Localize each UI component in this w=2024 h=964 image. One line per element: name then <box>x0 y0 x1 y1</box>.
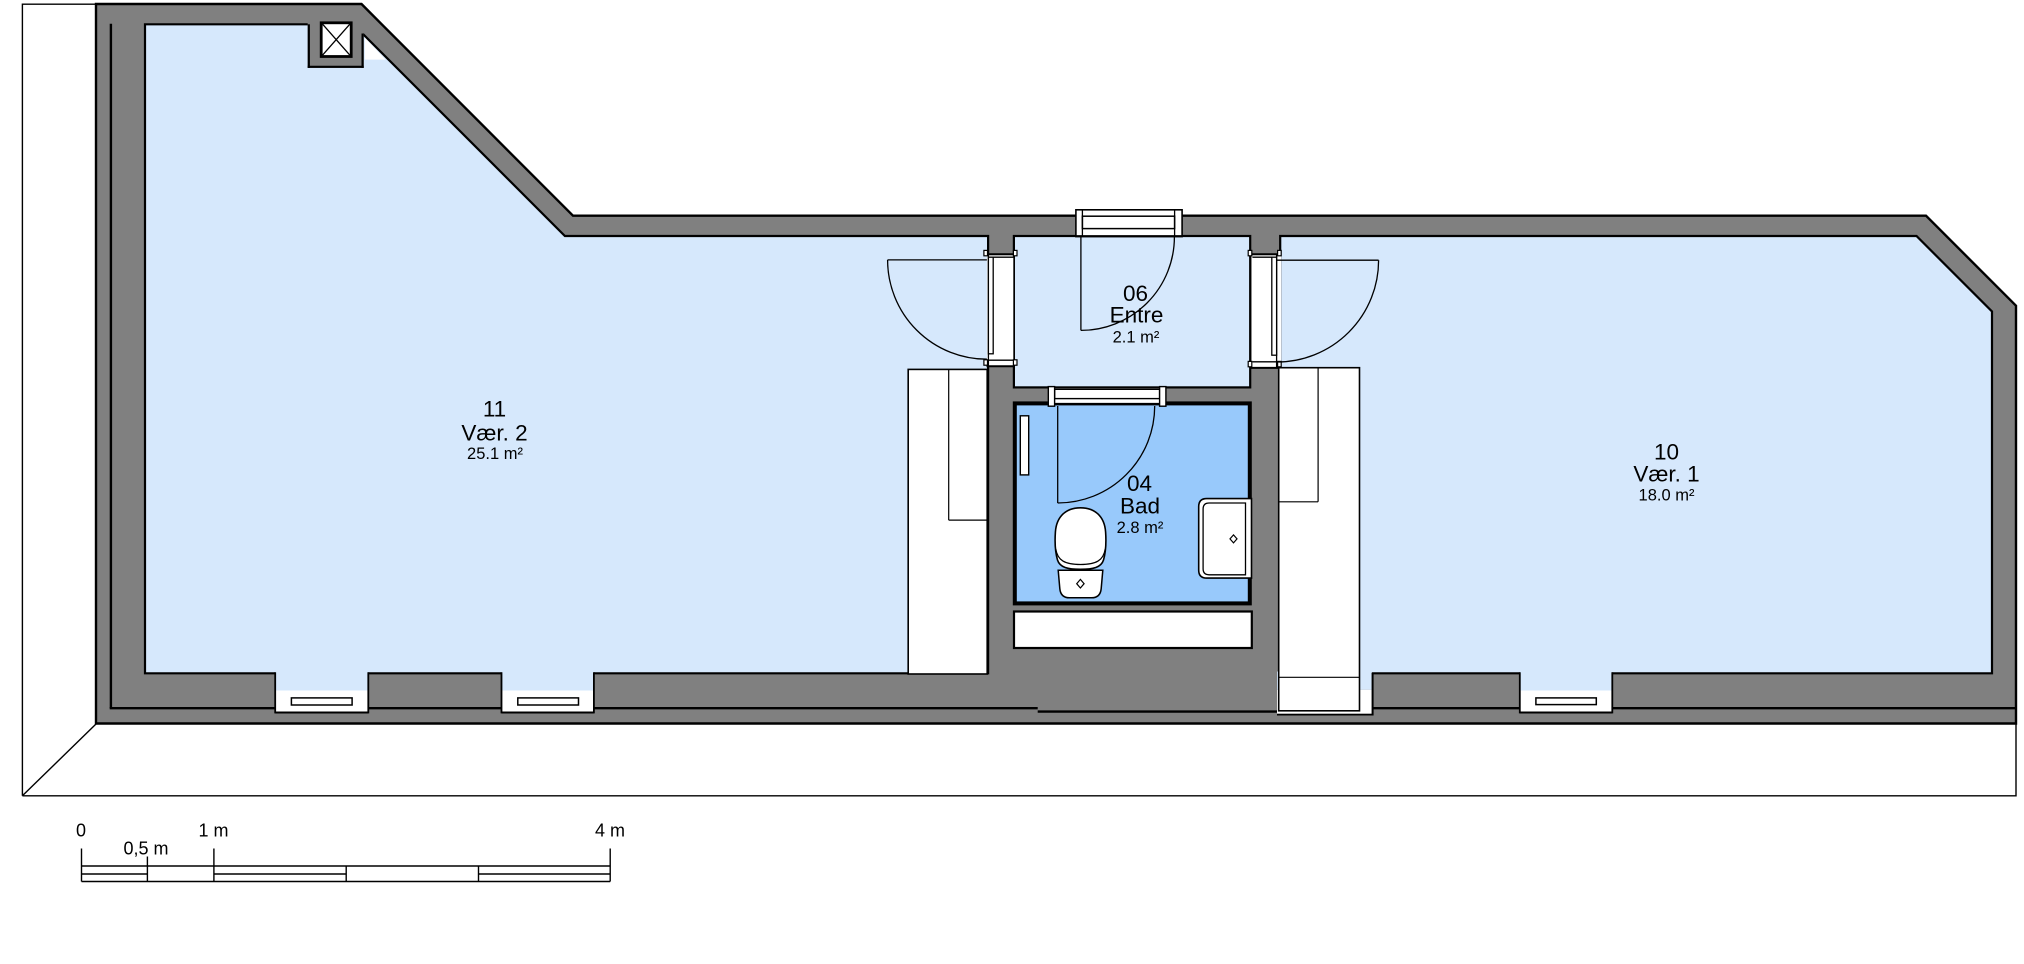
svg-text:2.1 m²: 2.1 m² <box>1113 329 1160 347</box>
svg-text:25.1 m²: 25.1 m² <box>467 445 523 463</box>
svg-text:11: 11 <box>483 397 506 422</box>
svg-text:Vær. 2: Vær. 2 <box>461 421 527 446</box>
svg-text:Entre: Entre <box>1110 303 1164 328</box>
svg-text:Vær. 1: Vær. 1 <box>1633 462 1699 487</box>
svg-text:Bad: Bad <box>1120 494 1160 519</box>
svg-text:04: 04 <box>1127 471 1152 496</box>
svg-text:0,5 m: 0,5 m <box>123 839 168 859</box>
svg-text:0: 0 <box>76 821 86 841</box>
svg-text:18.0 m²: 18.0 m² <box>1639 487 1695 505</box>
svg-text:2.8 m²: 2.8 m² <box>1117 519 1164 537</box>
svg-text:1 m: 1 m <box>198 821 228 841</box>
svg-text:4 m: 4 m <box>595 821 625 841</box>
